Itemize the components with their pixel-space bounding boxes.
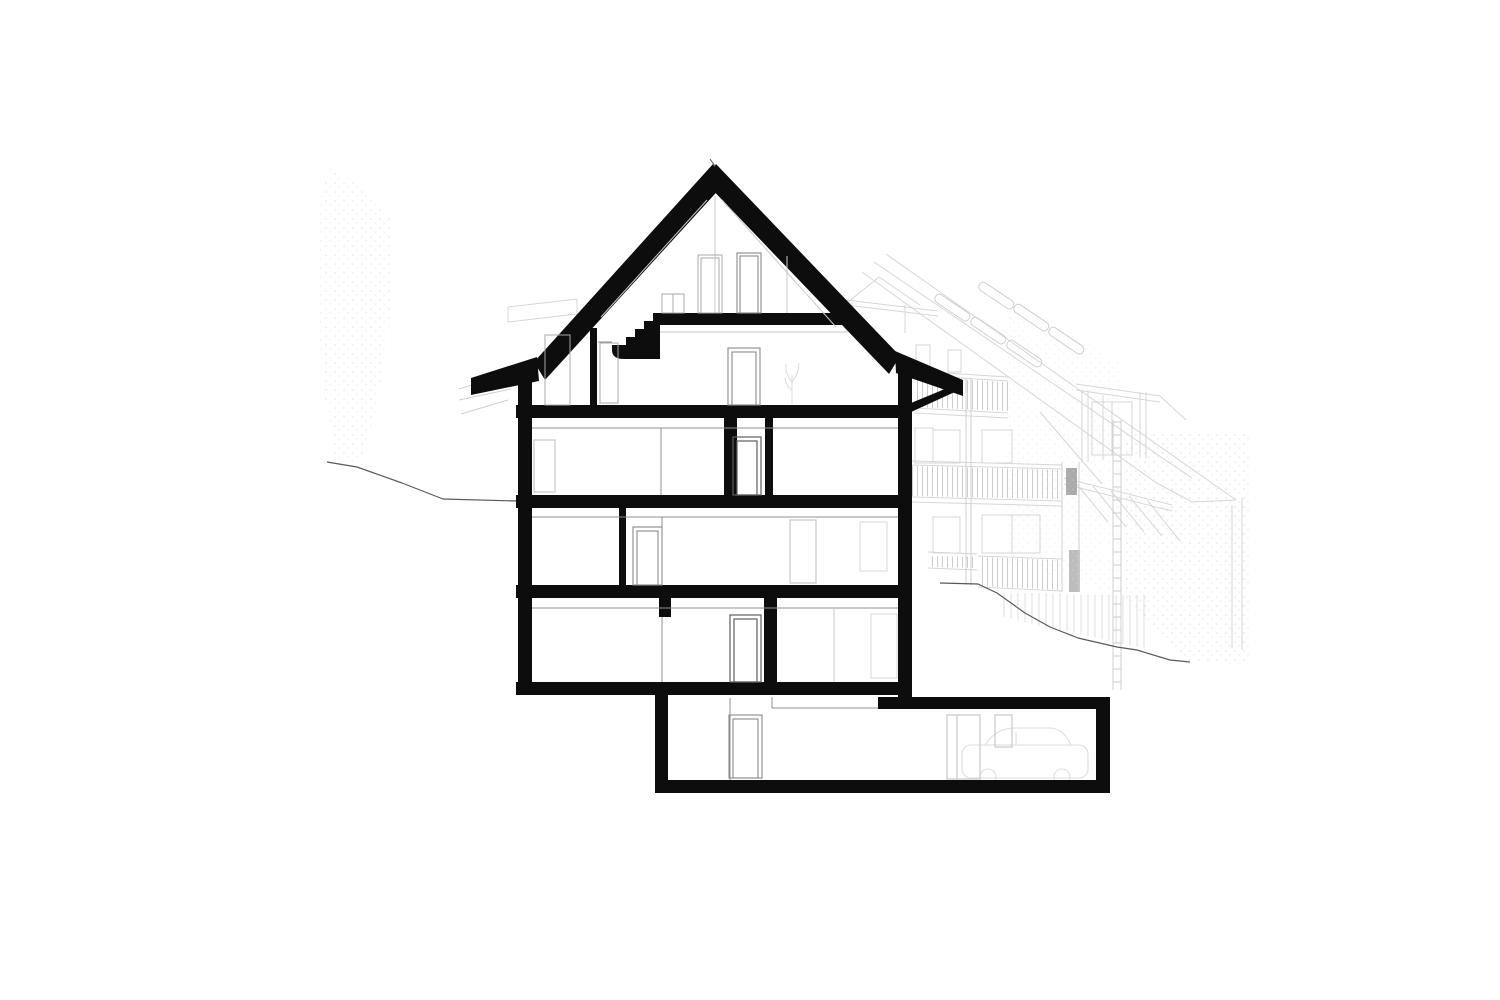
ground-floor-wall-stub — [659, 597, 671, 617]
basement-wall-right — [1096, 697, 1110, 790]
corridor-wall-right — [765, 417, 773, 496]
basement-wall-left — [655, 695, 668, 788]
plant-sketch — [785, 363, 799, 404]
attic-wall — [590, 328, 597, 407]
ground-floor-wall — [764, 597, 777, 683]
terrain-left — [327, 462, 516, 501]
garage-ceiling-slab — [878, 697, 1110, 709]
basement-door — [729, 715, 762, 778]
attic-door-left — [698, 255, 722, 313]
first-floor-wall — [619, 507, 626, 586]
first-floor-right-window — [860, 522, 887, 571]
architectural-section-page — [0, 0, 1500, 1000]
first-floor-door — [633, 527, 662, 585]
corridor-door — [733, 437, 761, 495]
lower-wall-hatch-left — [1000, 593, 1062, 632]
first-floor-right-door — [790, 520, 816, 583]
ground-floor-right-window — [871, 614, 897, 678]
building-section-drawing — [0, 0, 1500, 1000]
car-sketch — [962, 728, 1088, 785]
ground-floor-door — [730, 615, 761, 682]
upper-floor-slab — [516, 405, 912, 418]
lower-floor-slab — [516, 585, 912, 598]
corridor-left-window — [534, 440, 555, 492]
basement-floor-slab — [655, 780, 1110, 793]
garage-door-frame — [947, 715, 1012, 779]
exterior-wall-left — [518, 374, 532, 695]
stair-to-attic — [612, 313, 660, 359]
roof-slope-right — [705, 164, 900, 374]
ground-slab — [516, 682, 912, 695]
corridor-wall-left — [724, 417, 737, 496]
mid-floor-slab — [516, 495, 912, 508]
upper-floor-door — [728, 348, 760, 405]
tree-sketch — [317, 168, 393, 462]
attic-door-right — [737, 253, 761, 313]
left-parapet-sketch — [508, 299, 577, 322]
attic-floor-slab — [653, 313, 858, 325]
vegetation-speckle-mid — [1005, 300, 1120, 598]
